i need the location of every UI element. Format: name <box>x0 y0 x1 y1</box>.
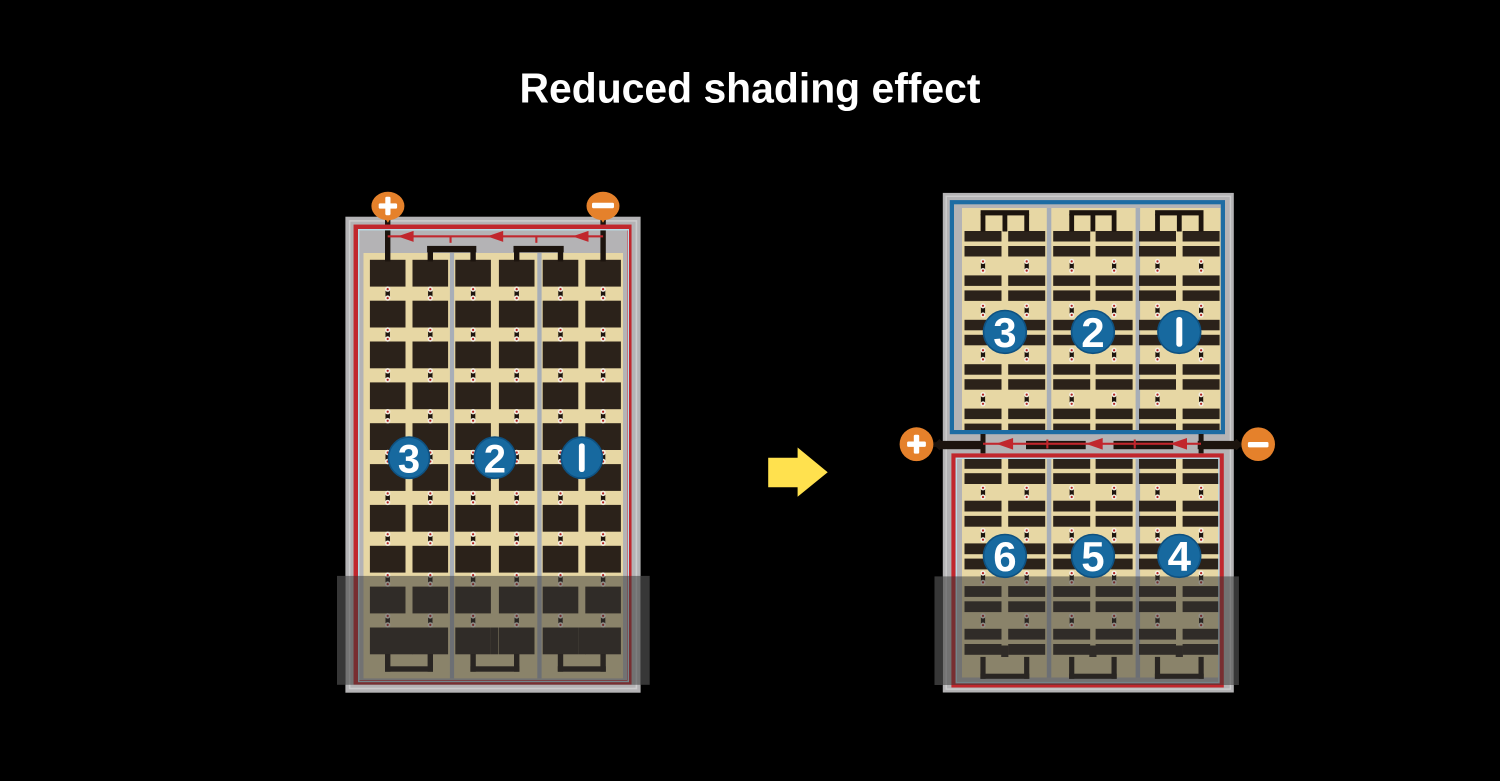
svg-text:4: 4 <box>1168 533 1192 580</box>
svg-text:3: 3 <box>398 437 420 481</box>
svg-text:5: 5 <box>1081 533 1104 580</box>
svg-text:Reduced shading effect: Reduced shading effect <box>520 65 981 112</box>
svg-text:2: 2 <box>484 437 506 481</box>
svg-text:6: 6 <box>993 533 1016 580</box>
svg-text:2: 2 <box>1081 309 1104 356</box>
svg-text:3: 3 <box>993 309 1016 356</box>
